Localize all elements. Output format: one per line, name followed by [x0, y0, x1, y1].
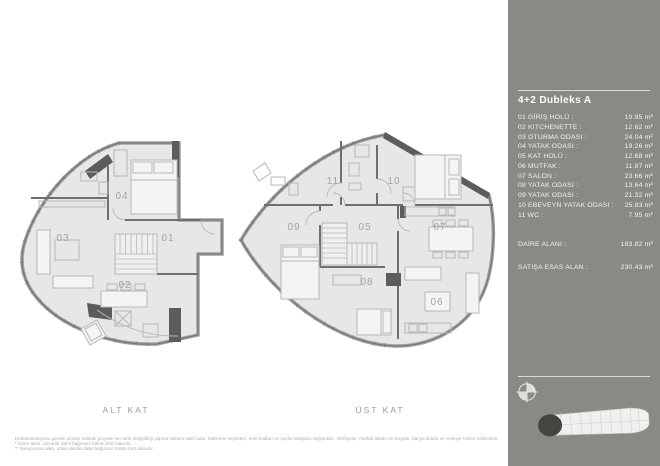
plan-caption-ust-kat: ÜST KAT	[335, 405, 425, 415]
staircase	[115, 234, 157, 274]
room-area-label: 02 KITCHENETTE :	[518, 123, 582, 133]
room-area-label: 10 EBEVEYN YATAK ODASI :	[518, 201, 614, 211]
room-number-11: 11	[327, 176, 339, 187]
total-value: 183.82 m²	[621, 241, 653, 248]
legend-row: 02 KITCHENETTE : 12.62 m²	[518, 123, 653, 133]
room-number-01: 01	[161, 233, 174, 244]
room-area-value: 12.62 m²	[625, 123, 653, 133]
room-area-value: 10.95 m²	[625, 113, 653, 123]
room-area-value: 19.26 m²	[625, 142, 653, 152]
legend-row: 10 EBEVEYN YATAK ODASI : 25.83 m²	[518, 201, 653, 211]
room-area-list: 01 GİRİŞ HOLÜ : 10.95 m² 02 KITCHENETTE …	[518, 113, 653, 220]
total-label: DAİRE ALANI :	[518, 241, 566, 248]
room-area-label: 05 KAT HOLÜ :	[518, 152, 567, 162]
room-number-10: 10	[387, 176, 400, 187]
room-area-value: 11.87 m²	[625, 162, 653, 172]
room-number-05: 05	[358, 222, 371, 233]
legend-row: 09 YATAK ODASI : 21.32 m²	[518, 191, 653, 201]
room-area-value: 13.64 m²	[625, 181, 653, 191]
compass-icon	[516, 381, 538, 403]
room-area-label: 06 MUTFAK :	[518, 162, 561, 172]
legend-row: 11 WC : 7.95 m²	[518, 211, 653, 221]
room-area-label: 08 YATAK ODASI :	[518, 181, 578, 191]
room-number-08: 08	[360, 277, 373, 288]
legend-row: 04 YATAK ODASI : 19.26 m²	[518, 142, 653, 152]
legend-row: 05 KAT HOLÜ : 12.68 m²	[518, 152, 653, 162]
panel-divider-top	[518, 90, 650, 91]
total-daire-alani: DAİRE ALANI : 183.82 m²	[518, 241, 653, 248]
total-satisa-esas-alan: SATIŞA ESAS ALAN : 230.43 m²	[518, 264, 653, 271]
room-number-09: 09	[287, 222, 300, 233]
unit-title: 4+2 Dubleks A	[518, 95, 591, 106]
room-area-value: 25.83 m²	[625, 201, 653, 211]
legend-row: 01 GİRİŞ HOLÜ : 10.95 m²	[518, 113, 653, 123]
panel-divider-bottom	[518, 376, 650, 377]
room-area-label: 01 GİRİŞ HOLÜ :	[518, 113, 574, 123]
room-number-02: 02	[118, 280, 131, 291]
room-area-label: 04 YATAK ODASI :	[518, 142, 578, 152]
legend-row: 06 MUTFAK : 11.87 m²	[518, 162, 653, 172]
room-area-label: 07 SALON :	[518, 172, 556, 182]
room-area-value: 23.66 m²	[625, 172, 653, 182]
room-number-07: 07	[433, 222, 446, 233]
floor-plan-ust-kat: 11 10 09 05 07 08 06	[237, 127, 497, 352]
room-area-value: 12.68 m²	[625, 152, 653, 162]
footnote-satisa-esas-alan: ** Satışa esas alan, ortak alanlar dahil…	[15, 446, 495, 451]
floor-plan-alt-kat: 04 03 01 02	[15, 138, 232, 348]
total-value: 230.43 m²	[621, 264, 653, 271]
room-area-value: 7.95 m²	[629, 211, 653, 221]
room-number-03: 03	[56, 233, 69, 244]
legend-row: 07 SALON : 23.66 m²	[518, 172, 653, 182]
room-number-04: 04	[115, 191, 128, 202]
plan-caption-alt-kat: ALT KAT	[81, 405, 171, 415]
room-area-label: 03 OTURMA ODASI :	[518, 133, 587, 143]
room-number-06: 06	[430, 297, 443, 308]
brochure-page: 04 03 01 02	[0, 0, 660, 466]
room-area-label: 11 WC :	[518, 211, 543, 221]
legend-row: 03 OTURMA ODASI : 24.04 m²	[518, 133, 653, 143]
total-label: SATIŞA ESAS ALAN :	[518, 264, 588, 271]
legend-row: 08 YATAK ODASI : 13.64 m²	[518, 181, 653, 191]
room-area-label: 09 YATAK ODASI :	[518, 191, 578, 201]
key-plan	[534, 403, 656, 445]
footer: Dokümantasyonu gerekli olması halinde pr…	[15, 436, 495, 452]
room-area-value: 24.04 m²	[625, 133, 653, 143]
room-area-value: 21.32 m²	[625, 191, 653, 201]
